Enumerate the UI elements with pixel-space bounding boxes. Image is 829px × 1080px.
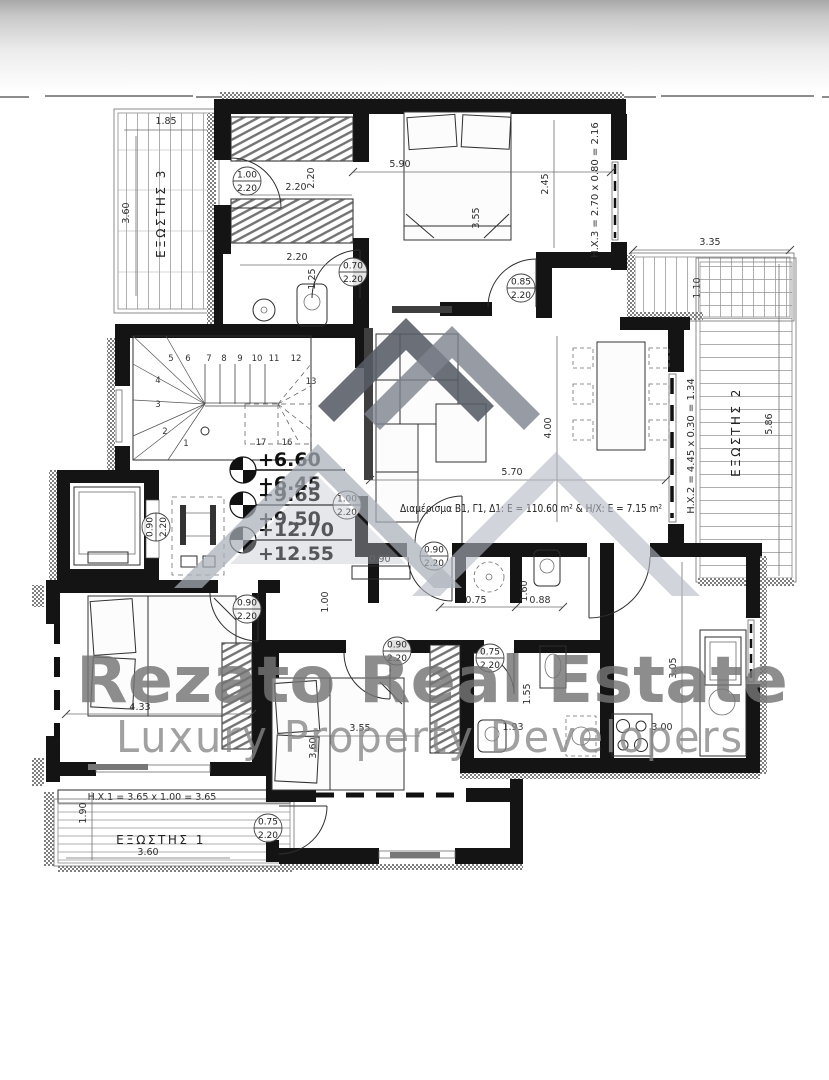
dim-master-depth: 2.45 bbox=[540, 173, 551, 194]
stair-num: 4 bbox=[155, 376, 160, 386]
dining-set bbox=[573, 342, 669, 450]
door-height: 2.20 bbox=[511, 291, 531, 301]
stair-num: 9 bbox=[237, 354, 242, 364]
door-width: 0.90 bbox=[146, 517, 156, 537]
door-height: 2.20 bbox=[237, 184, 257, 194]
stair-num: 10 bbox=[252, 354, 263, 364]
dim-bath1-width: 2.20 bbox=[286, 252, 307, 263]
watermark-title: Rezato Real Estate bbox=[76, 644, 788, 718]
door-label-3: 0.90 2.20 bbox=[142, 513, 170, 541]
stair-num: 3 bbox=[155, 400, 160, 410]
stair-numbers: 1 2 3 4 5 6 7 8 9 10 11 12 13 16 17 bbox=[155, 354, 316, 449]
scan-artifacts bbox=[0, 0, 829, 97]
balcony3-label: ΕΞΩΣΤΗΣ 3 bbox=[154, 168, 168, 258]
window-living bbox=[669, 374, 676, 522]
door-width: 0.90 bbox=[237, 599, 257, 609]
stair-winder-right bbox=[245, 364, 311, 444]
balcony2-label: ΕΞΩΣΤΗΣ 2 bbox=[729, 387, 743, 477]
door-width: 0.85 bbox=[511, 278, 531, 288]
newel-post bbox=[201, 427, 209, 435]
door-label-6: 0.90 2.20 bbox=[233, 595, 261, 623]
dim-balcony3-width: 1.85 bbox=[155, 116, 176, 127]
door-height: 2.20 bbox=[343, 275, 363, 285]
stair-num: 17 bbox=[256, 438, 267, 448]
stair-num: 1 bbox=[183, 439, 188, 449]
dim-bed-length: 3.55 bbox=[471, 207, 482, 228]
window-sill bbox=[88, 764, 148, 770]
dim-living-width: 5.70 bbox=[501, 467, 522, 478]
stair-num: 5 bbox=[168, 354, 173, 364]
shower bbox=[474, 562, 504, 592]
dim-balcony-tr-width: 3.35 bbox=[699, 237, 720, 248]
dim-balcony1-width: 3.60 bbox=[137, 847, 158, 858]
hx2-calc-label: H.X.2 = 4.45 x 0.30 = 1.34 bbox=[686, 378, 697, 513]
stair-num: 11 bbox=[269, 354, 280, 364]
dim-wc-a: 0.75 bbox=[465, 595, 486, 606]
hx3-calc-label: H.X.3 = 2.70 x 0.80 = 2.16 bbox=[590, 122, 601, 257]
balcony2-deck bbox=[700, 262, 792, 578]
media-wall bbox=[364, 328, 373, 480]
door-width: 1.00 bbox=[237, 171, 257, 181]
door-label-0: 1.00 2.20 bbox=[233, 167, 261, 195]
balcony1-label: ΕΞΩΣΤΗΣ 1 bbox=[116, 833, 206, 847]
stair-risers bbox=[205, 364, 278, 406]
stair-num: 8 bbox=[221, 354, 226, 364]
door-height: 2.20 bbox=[159, 517, 169, 537]
window-master bbox=[612, 162, 618, 240]
door-label-9: 0.75 2.20 bbox=[254, 814, 282, 842]
living-dining: 4.00 5.70 Διαμέρισμα Β1, Γ1, Δ1: E = 110… bbox=[355, 320, 684, 557]
dim-wc-b: 0.88 bbox=[529, 595, 550, 606]
dim-balcony2-length: 5.86 bbox=[764, 413, 775, 434]
door-label-1: 0.70 2.20 bbox=[339, 258, 367, 286]
dim-balcony3-length: 3.60 bbox=[121, 202, 132, 223]
watermark-subtitle: Luxury Property Developers bbox=[116, 712, 744, 763]
tv-console bbox=[392, 306, 452, 313]
kitchen-door-swing bbox=[589, 557, 650, 618]
door-height: 2.20 bbox=[237, 612, 257, 622]
logo-chevron-lighter bbox=[412, 452, 700, 596]
bed-master bbox=[404, 112, 511, 240]
hx1-calc-label: H.X.1 = 3.65 x 1.00 = 3.65 bbox=[88, 792, 217, 803]
dim-wardrobe-width: 2.20 bbox=[285, 182, 306, 193]
dim-hall-width: 1.00 bbox=[320, 591, 331, 612]
door-label-2: 0.85 2.20 bbox=[507, 274, 535, 302]
stair-num: 16 bbox=[282, 438, 293, 448]
stair-num: 12 bbox=[291, 354, 302, 364]
dim-bath1-depth: 1.25 bbox=[307, 268, 318, 289]
dining-table bbox=[597, 342, 645, 450]
dim-wardrobe-side: 2.20 bbox=[306, 167, 317, 188]
balcony-2: 5.86 ΕΞΩΣΤΗΣ 2 H.X.2 = 4.45 x 0.30 = 1.3… bbox=[686, 258, 796, 586]
hall-cabinet bbox=[352, 566, 410, 579]
floor-plan-canvas: 1.85 3.60 ΕΞΩΣΤΗΣ 3 bbox=[0, 0, 829, 1080]
watermark: Rezato Real Estate Luxury Property Devel… bbox=[76, 644, 788, 763]
dim-wc-height: 1.60 bbox=[519, 580, 530, 601]
stair-num: 6 bbox=[185, 354, 190, 364]
window-stair bbox=[116, 390, 122, 442]
door-width: 0.70 bbox=[343, 262, 363, 272]
stair-num: 7 bbox=[206, 354, 211, 364]
dim-living-depth: 4.00 bbox=[543, 417, 554, 438]
window-sill2 bbox=[390, 852, 440, 858]
scan-gradient bbox=[0, 0, 829, 92]
floor-plan-page: 1.85 3.60 ΕΞΩΣΤΗΣ 3 bbox=[0, 0, 829, 1080]
balcony-3: 1.85 3.60 ΕΞΩΣΤΗΣ 3 bbox=[114, 109, 219, 313]
door-width: 0.75 bbox=[258, 818, 278, 828]
dim-balcony1-depth: 1.90 bbox=[78, 802, 89, 823]
insulation-top bbox=[220, 92, 624, 100]
stair-num: 2 bbox=[162, 427, 167, 437]
sink bbox=[253, 299, 275, 321]
door-height: 2.20 bbox=[258, 831, 278, 841]
stair-num: 13 bbox=[306, 377, 317, 387]
dim-master-width: 5.90 bbox=[389, 159, 410, 170]
